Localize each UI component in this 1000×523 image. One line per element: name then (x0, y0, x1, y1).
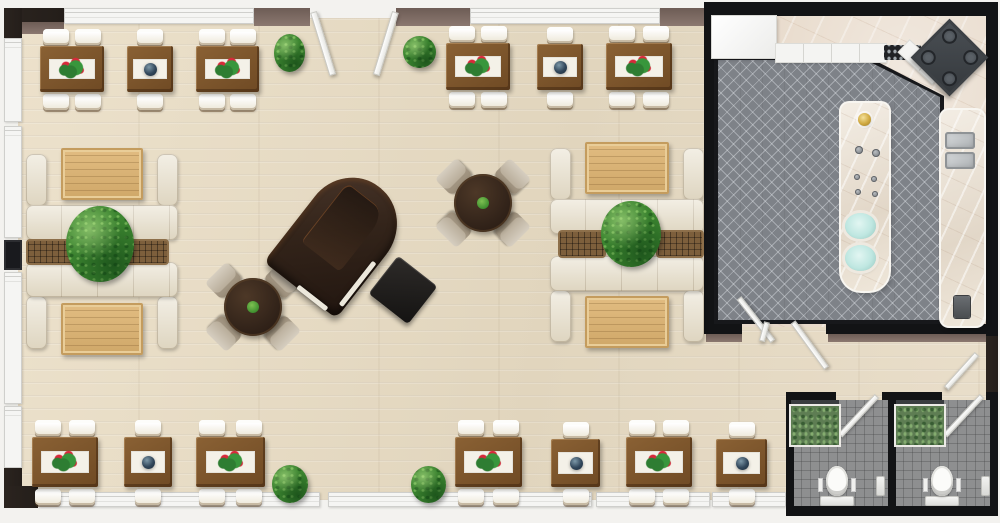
vase-centerpiece (142, 456, 155, 469)
dining-chair (137, 94, 163, 110)
wall-segment (986, 336, 998, 396)
dining-chair (493, 420, 519, 436)
wall-segment (4, 8, 22, 38)
restroom-mirror (896, 400, 944, 405)
wall-segment (704, 324, 742, 334)
dining-chair (236, 420, 262, 436)
lounge-table (585, 142, 668, 194)
dining-chair (69, 420, 95, 436)
vanity-plant (896, 406, 944, 445)
table-plant (247, 301, 259, 313)
wall-segment (254, 8, 310, 26)
island-knob (855, 189, 861, 195)
lounge-plant (66, 206, 134, 282)
dining-table (606, 43, 672, 90)
dining-chair (35, 420, 61, 436)
window-segment (64, 8, 254, 24)
restroom-vanity-right (896, 400, 944, 445)
table-top (196, 437, 265, 487)
coffee-table (658, 232, 702, 256)
dining-chair (493, 489, 519, 505)
flower-centerpiece (57, 57, 87, 81)
island-basin (845, 213, 876, 239)
table-top (124, 437, 172, 487)
wall-segment (888, 392, 896, 514)
dining-table (455, 437, 522, 487)
dining-table (537, 44, 583, 90)
dining-chair (481, 92, 507, 108)
lounge-table (61, 148, 143, 200)
wall-segment (396, 8, 470, 26)
lounge-table (61, 303, 143, 355)
dining-chair (35, 489, 61, 505)
dining-table (124, 437, 172, 487)
dining-chair (629, 420, 655, 436)
dining-chair (199, 29, 225, 45)
dining-chair (609, 92, 635, 108)
table-top (551, 439, 600, 487)
sofa-arm (26, 296, 47, 349)
flower-centerpiece (624, 55, 654, 79)
dining-chair (199, 420, 225, 436)
table-top (606, 43, 672, 90)
table-top (32, 437, 98, 487)
vase-centerpiece (570, 457, 583, 470)
dining-chair (458, 420, 484, 436)
dining-chair (481, 26, 507, 42)
sofa-arm (157, 154, 178, 206)
table-plant (477, 197, 489, 209)
stove-burner (918, 47, 939, 68)
vase-centerpiece (554, 61, 567, 74)
dining-table (196, 46, 259, 92)
flower-centerpiece (474, 450, 504, 474)
floor-plan-canvas (0, 0, 1000, 523)
toilet-rail (923, 478, 928, 492)
dining-chair (449, 92, 475, 108)
dining-chair (43, 29, 69, 45)
restroom-fixture (981, 476, 990, 496)
kitchen-cabinet-block (712, 16, 776, 58)
round-dining-table (437, 157, 529, 249)
dining-chair (449, 26, 475, 42)
wall-segment (4, 240, 22, 270)
dining-chair (563, 489, 589, 505)
dining-chair (199, 489, 225, 505)
kitchen-counter (776, 44, 886, 62)
lounge-booth (550, 256, 704, 348)
coffee-table (560, 232, 604, 256)
lounge-table (585, 296, 668, 348)
window-segment (4, 272, 22, 404)
sofa-arm (550, 148, 571, 200)
toilet-bowl (931, 466, 953, 496)
island-knob (872, 149, 880, 157)
table-top (626, 437, 692, 487)
table-top (446, 43, 510, 90)
dining-chair (547, 27, 573, 43)
window-segment (4, 38, 22, 122)
wall-segment (986, 2, 998, 336)
dining-chair (458, 489, 484, 505)
restroom-vanity-left (791, 400, 839, 445)
wall-segment (990, 392, 998, 514)
vase-centerpiece (736, 457, 749, 470)
dining-chair (643, 26, 669, 42)
wall-segment (828, 334, 986, 342)
toilet-rail (851, 478, 856, 492)
sink-basin (945, 152, 975, 169)
counter-appliance (954, 296, 970, 318)
kitchen-rug-tile (718, 60, 940, 320)
dining-chair (236, 489, 262, 505)
island-knob (854, 174, 860, 180)
table-top (537, 44, 583, 90)
dining-table (626, 437, 692, 487)
dining-chair (729, 422, 755, 438)
sofa-arm (157, 296, 178, 349)
dining-chair (69, 489, 95, 505)
dining-chair (629, 489, 655, 505)
wall-segment (660, 8, 710, 26)
toilet-tank (820, 496, 854, 506)
dining-chair (230, 29, 256, 45)
dining-table (40, 46, 104, 92)
table-top (40, 46, 104, 92)
toilet-bowl (826, 466, 848, 496)
flower-centerpiece (213, 57, 243, 81)
window-segment (4, 406, 22, 468)
dining-chair (75, 29, 101, 45)
dining-chair (43, 94, 69, 110)
lounge-plant (601, 201, 661, 267)
dining-chair (729, 489, 755, 505)
stove-burner (960, 47, 981, 68)
dining-chair (563, 422, 589, 438)
dining-chair (135, 420, 161, 436)
sink-basin (945, 132, 975, 149)
island-knob (872, 191, 878, 197)
dining-table (446, 43, 510, 90)
dining-chair (663, 489, 689, 505)
wall-segment (706, 334, 742, 342)
restroom-mirror (791, 400, 839, 405)
dining-chair (609, 26, 635, 42)
dining-table (32, 437, 98, 487)
floor-plant (274, 34, 305, 72)
flower-centerpiece (644, 450, 674, 474)
island-basin (845, 245, 876, 271)
dining-chair (663, 420, 689, 436)
island-faucet (858, 113, 871, 126)
wall-segment (704, 2, 998, 16)
restroom-fixture (876, 476, 885, 496)
toilet-rail (956, 478, 961, 492)
stove-burner (939, 68, 960, 89)
island-knob (855, 146, 863, 154)
window-segment (470, 8, 660, 24)
island-knob (871, 176, 877, 182)
flower-centerpiece (216, 450, 246, 474)
sofa-arm (550, 290, 571, 342)
flower-centerpiece (463, 55, 493, 79)
dining-chair (230, 94, 256, 110)
floor-plant (411, 466, 446, 503)
toilet-left (818, 466, 856, 506)
sofa-arm (26, 154, 47, 206)
wall-segment (4, 486, 38, 508)
dining-table (716, 439, 767, 487)
dining-chair (547, 92, 573, 108)
dining-table (127, 46, 173, 92)
toilet-tank (925, 496, 959, 506)
dining-chair (137, 29, 163, 45)
dining-chair (199, 94, 225, 110)
flower-centerpiece (50, 450, 80, 474)
stove-burner (939, 26, 960, 47)
table-top (196, 46, 259, 92)
dining-chair (643, 92, 669, 108)
table-top (716, 439, 767, 487)
dining-chair (75, 94, 101, 110)
vanity-plant (791, 406, 839, 445)
toilet-right (923, 466, 961, 506)
floor-plant (272, 465, 308, 503)
vase-centerpiece (144, 63, 157, 76)
wall-segment (786, 506, 998, 516)
sofa-arm (683, 290, 704, 342)
sofa-arm (683, 148, 704, 200)
window-segment (4, 126, 22, 238)
toilet-rail (818, 478, 823, 492)
dining-table (196, 437, 265, 487)
table-top (127, 46, 173, 92)
table-top (455, 437, 522, 487)
kitchen-rug (714, 56, 944, 324)
floor-plant (403, 36, 436, 68)
dining-chair (135, 489, 161, 505)
dining-table (551, 439, 600, 487)
